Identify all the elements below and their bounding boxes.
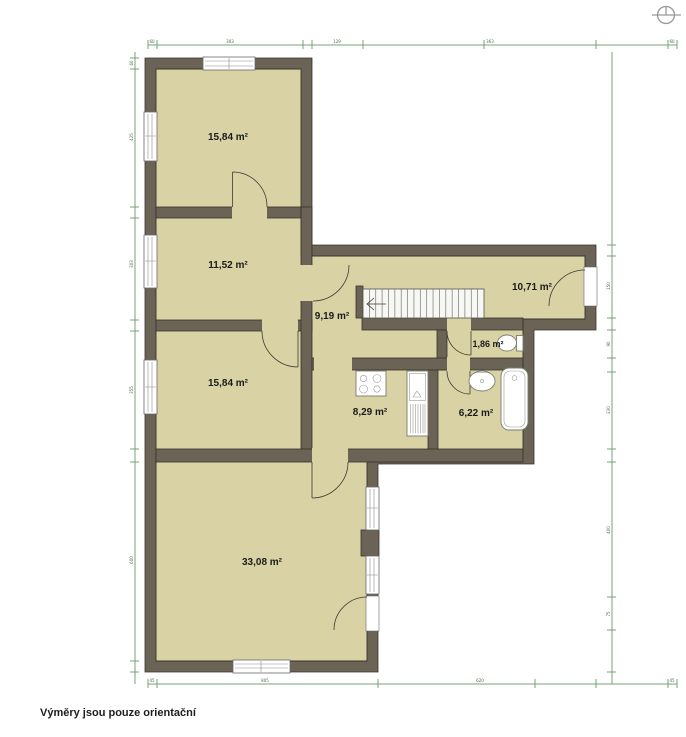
compass-icon xyxy=(652,7,681,24)
svg-text:425: 425 xyxy=(129,133,134,141)
window xyxy=(233,660,290,673)
washbasin-icon xyxy=(469,371,495,391)
interior-wall xyxy=(301,207,312,453)
room-area-label: 15,84 m² xyxy=(208,132,249,143)
interior-wall xyxy=(428,370,438,453)
svg-text:60: 60 xyxy=(149,39,155,44)
exterior-door-opening xyxy=(366,596,379,631)
svg-text:60: 60 xyxy=(669,39,675,44)
svg-text:230: 230 xyxy=(606,406,611,414)
room-area-label: 8,29 m² xyxy=(353,407,388,418)
svg-text:303: 303 xyxy=(129,260,134,268)
room-area-label: 1,86 m² xyxy=(472,339,503,349)
interior-wall xyxy=(156,207,301,218)
window xyxy=(144,112,157,161)
stove-icon xyxy=(356,371,386,396)
svg-text:45: 45 xyxy=(149,678,155,683)
svg-text:400: 400 xyxy=(606,526,611,534)
window-pier xyxy=(361,530,379,556)
svg-text:75: 75 xyxy=(606,611,611,617)
svg-text:60: 60 xyxy=(129,60,134,66)
room-area-label: 15,84 m² xyxy=(208,378,249,389)
floor-plan-page: 6030312936360458056204560425303355600150… xyxy=(0,0,686,737)
room-area-label: 33,08 m² xyxy=(242,557,283,568)
svg-text:129: 129 xyxy=(333,39,341,44)
interior-wall xyxy=(362,318,523,330)
room-area-label: 6,22 m² xyxy=(459,408,494,419)
window xyxy=(144,235,157,288)
kitchen-unit-icon xyxy=(407,371,428,436)
room-area-label: 9,19 m² xyxy=(315,311,350,322)
staircase xyxy=(363,289,484,318)
window xyxy=(366,487,379,530)
svg-text:600: 600 xyxy=(129,556,134,564)
svg-text:363: 363 xyxy=(486,39,494,44)
svg-text:150: 150 xyxy=(606,282,611,290)
disclaimer-caption: Výměry jsou pouze orientační xyxy=(40,707,196,719)
room-area-label: 11,52 m² xyxy=(208,260,248,271)
stair-wall-stub xyxy=(356,286,363,318)
floor-plan-svg: 6030312936360458056204560425303355600150… xyxy=(0,0,686,737)
svg-text:90: 90 xyxy=(606,341,611,347)
svg-text:805: 805 xyxy=(261,678,269,683)
svg-text:355: 355 xyxy=(129,386,134,394)
svg-text:620: 620 xyxy=(476,678,484,683)
exterior-door-opening xyxy=(584,267,597,306)
svg-text:45: 45 xyxy=(669,678,675,683)
svg-text:303: 303 xyxy=(226,39,234,44)
bathtub-icon xyxy=(501,368,528,430)
room-area-label: 10,71 m² xyxy=(512,282,553,293)
